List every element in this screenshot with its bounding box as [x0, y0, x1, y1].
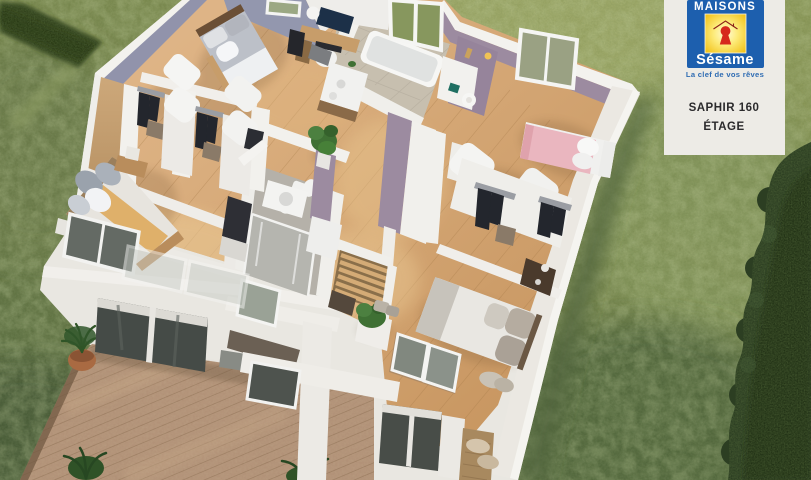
svg-text:SAPHIR 160: SAPHIR 160	[689, 102, 760, 114]
svg-text:Sésame: Sésame	[696, 52, 754, 68]
svg-text:MAISONS: MAISONS	[694, 1, 756, 13]
svg-text:La clef de vos rêves: La clef de vos rêves	[686, 70, 764, 79]
svg-text:ÉTAGE: ÉTAGE	[703, 120, 744, 133]
